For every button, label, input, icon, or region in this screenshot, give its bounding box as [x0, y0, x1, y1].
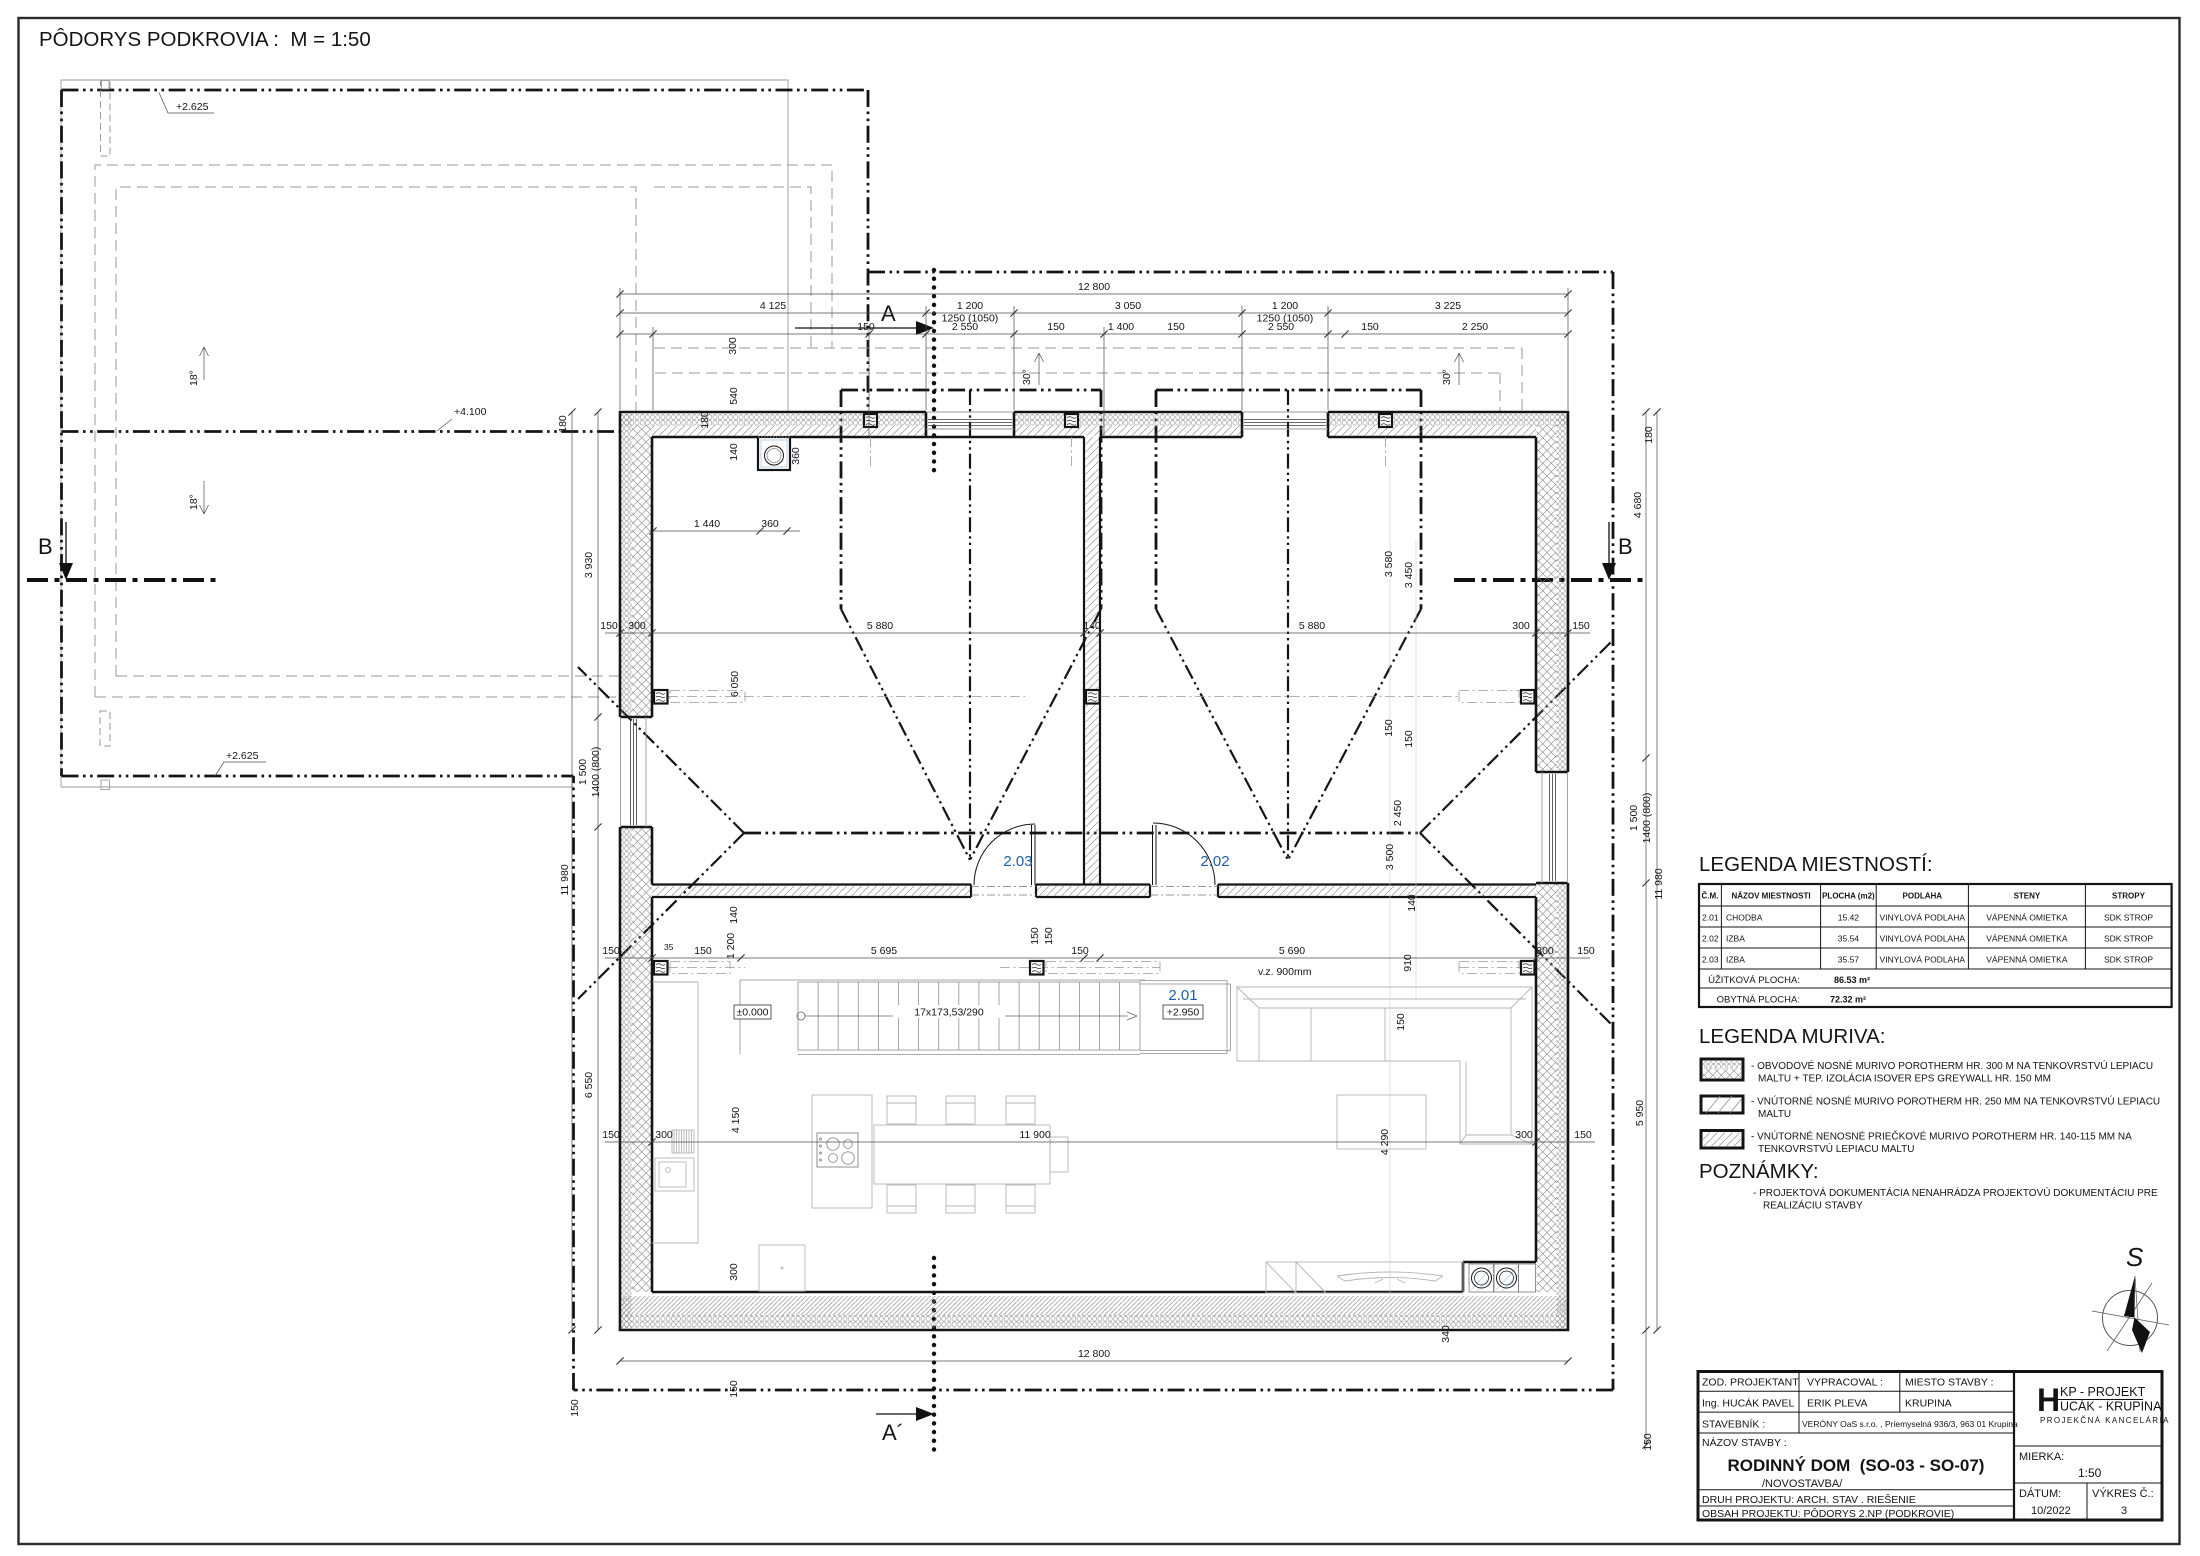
svg-text:2 450: 2 450 [1392, 800, 1404, 826]
svg-text:1 440: 1 440 [694, 518, 720, 530]
svg-text:SDK STROP: SDK STROP [2104, 934, 2153, 944]
svg-text:6 550: 6 550 [583, 1072, 595, 1098]
svg-text:4 680: 4 680 [1632, 492, 1644, 518]
svg-text:2.01: 2.01 [1702, 913, 1719, 923]
svg-text:86.53 m²: 86.53 m² [1834, 975, 1870, 985]
svg-text:180: 180 [1643, 426, 1655, 444]
svg-text:2.03: 2.03 [1003, 853, 1032, 870]
svg-text:REALIZÁCIU STAVBY: REALIZÁCIU STAVBY [1763, 1199, 1863, 1212]
svg-text:VINYLOVÁ PODLAHA: VINYLOVÁ PODLAHA [1880, 955, 1966, 965]
svg-text:11 900: 11 900 [1019, 1129, 1050, 1141]
svg-text:1 200: 1 200 [1272, 300, 1298, 312]
svg-text:4 150: 4 150 [730, 1107, 742, 1133]
svg-text:RODINNÝ DOM (SO-03 - SO-07): RODINNÝ DOM (SO-03 - SO-07) [1728, 1456, 1985, 1475]
svg-text:1 500: 1 500 [577, 759, 589, 785]
svg-text:ZOD. PROJEKTANT:: ZOD. PROJEKTANT: [1702, 1377, 1800, 1389]
svg-text:v.z. 900mm: v.z. 900mm [1258, 966, 1312, 978]
svg-text:B: B [38, 534, 53, 559]
svg-text:STAVEBNÍK :: STAVEBNÍK : [1702, 1418, 1765, 1431]
svg-text:3: 3 [2121, 1505, 2127, 1517]
svg-text:STROPY: STROPY [2112, 892, 2146, 901]
svg-text:ERIK PLEVA: ERIK PLEVA [1807, 1398, 1868, 1410]
svg-text:H: H [2037, 1382, 2060, 1418]
svg-text:10/2022: 10/2022 [2031, 1505, 2071, 1517]
svg-text:150: 150 [1395, 1013, 1407, 1031]
svg-text:150: 150 [1577, 945, 1595, 957]
svg-text:5 690: 5 690 [1279, 945, 1305, 957]
svg-text:IZBA: IZBA [1726, 934, 1745, 944]
svg-text:30°: 30° [1441, 369, 1453, 385]
svg-text:SDK STROP: SDK STROP [2104, 913, 2153, 923]
svg-text:6 050: 6 050 [729, 671, 741, 697]
svg-text:150: 150 [602, 1129, 620, 1141]
svg-text:1:50: 1:50 [2078, 1466, 2102, 1480]
svg-text:5 880: 5 880 [867, 620, 893, 632]
svg-text:S: S [2126, 1242, 2144, 1272]
svg-text:1400 (800): 1400 (800) [1641, 793, 1653, 844]
svg-text:300: 300 [1515, 1129, 1533, 1141]
svg-text:3 930: 3 930 [583, 552, 595, 578]
svg-text:- PROJEKTOVÁ DOKUMENTÁCIA NENA: - PROJEKTOVÁ DOKUMENTÁCIA NENAHRÁDZA PRO… [1753, 1186, 2158, 1199]
svg-text:+2.625: +2.625 [176, 101, 209, 113]
svg-text:140: 140 [728, 906, 740, 924]
svg-text:3 500: 3 500 [1384, 844, 1396, 870]
svg-text:300: 300 [655, 1129, 673, 1141]
svg-text:PROJEKČNÁ KANCELÁRIA: PROJEKČNÁ KANCELÁRIA [2040, 1416, 2170, 1425]
svg-text:1 400: 1 400 [1108, 321, 1134, 333]
svg-text:540: 540 [728, 387, 740, 405]
svg-text:150: 150 [569, 1399, 581, 1417]
svg-text:VÁPENNÁ OMIETKA: VÁPENNÁ OMIETKA [1986, 955, 2068, 965]
svg-text:300: 300 [727, 337, 739, 355]
svg-text:A: A [881, 301, 896, 326]
svg-text:150: 150 [1047, 321, 1065, 333]
svg-text:MIERKA:: MIERKA: [2019, 1451, 2064, 1463]
svg-text:2.03: 2.03 [1702, 955, 1719, 965]
svg-text:12 800: 12 800 [1078, 281, 1110, 293]
svg-text:360: 360 [790, 447, 802, 465]
svg-text:MIESTO STAVBY :: MIESTO STAVBY : [1905, 1377, 1994, 1389]
svg-text:150: 150 [1361, 321, 1379, 333]
svg-text:150: 150 [728, 1380, 740, 1398]
svg-text:VYPRACOVAL :: VYPRACOVAL : [1807, 1377, 1883, 1389]
svg-text:35.57: 35.57 [1838, 955, 1860, 965]
svg-text:/NOVOSTAVBA/: /NOVOSTAVBA/ [1762, 1478, 1843, 1490]
svg-text:IZBA: IZBA [1726, 955, 1745, 965]
svg-text:2 250: 2 250 [1462, 321, 1488, 333]
svg-text:140: 140 [1406, 894, 1418, 912]
svg-text:VÁPENNÁ OMIETKA: VÁPENNÁ OMIETKA [1986, 934, 2068, 944]
svg-text:2 550: 2 550 [1268, 321, 1294, 333]
svg-text:3 050: 3 050 [1115, 300, 1141, 312]
svg-text:DÁTUM:: DÁTUM: [2019, 1487, 2061, 1500]
svg-text:150: 150 [1043, 927, 1055, 945]
svg-text:5 695: 5 695 [871, 945, 897, 957]
svg-text:NÁZOV MIESTNOSTI: NÁZOV MIESTNOSTI [1731, 892, 1810, 901]
svg-text:72.32 m²: 72.32 m² [1830, 995, 1866, 1005]
svg-text:SDK STROP: SDK STROP [2104, 955, 2153, 965]
svg-text:140: 140 [728, 443, 740, 461]
svg-text:2.01: 2.01 [1168, 987, 1197, 1004]
svg-text:150: 150 [602, 945, 620, 957]
svg-text:1 200: 1 200 [725, 933, 737, 959]
svg-text:150: 150 [857, 321, 875, 333]
svg-text:VÁPENNÁ OMIETKA: VÁPENNÁ OMIETKA [1986, 913, 2068, 923]
svg-text:OBYTNÁ PLOCHA:: OBYTNÁ PLOCHA: [1717, 995, 1800, 1006]
svg-text:3 580: 3 580 [1383, 551, 1395, 577]
svg-text:VINYLOVÁ PODLAHA: VINYLOVÁ PODLAHA [1880, 913, 1966, 923]
svg-text:2.02: 2.02 [1200, 853, 1229, 870]
svg-text:LEGENDA MIESTNOSTÍ:: LEGENDA MIESTNOSTÍ: [1699, 853, 1933, 876]
svg-text:150: 150 [1572, 620, 1590, 632]
svg-text:A´: A´ [882, 1420, 904, 1445]
svg-text:300: 300 [628, 620, 646, 632]
svg-text:+4.100: +4.100 [454, 406, 487, 418]
svg-text:NÁZOV STAVBY :: NÁZOV STAVBY : [1702, 1436, 1787, 1449]
svg-text:30°: 30° [1021, 369, 1033, 385]
svg-text:B: B [1618, 534, 1633, 559]
svg-text:180: 180 [557, 415, 569, 433]
svg-text:150: 150 [1642, 1433, 1654, 1451]
svg-text:ÚŽITKOVÁ PLOCHA:: ÚŽITKOVÁ PLOCHA: [1708, 975, 1800, 986]
svg-text:17x173,53/290: 17x173,53/290 [914, 1007, 984, 1019]
svg-text:MALTU + TEP. IZOLÁCIA ISOVER E: MALTU + TEP. IZOLÁCIA ISOVER EPS GREYWAL… [1758, 1072, 2051, 1085]
svg-text:5 880: 5 880 [1299, 620, 1325, 632]
svg-text:180: 180 [699, 411, 711, 429]
svg-text:1400 (800): 1400 (800) [590, 747, 602, 798]
svg-text:3 225: 3 225 [1435, 300, 1461, 312]
svg-text:3 450: 3 450 [1403, 562, 1415, 588]
svg-text:300: 300 [1512, 620, 1530, 632]
svg-text:11 980: 11 980 [1653, 868, 1665, 899]
svg-text:150: 150 [1029, 927, 1041, 945]
svg-text:150: 150 [600, 620, 618, 632]
svg-text:VERÓNY OaS s.r.o. , Priemyseln: VERÓNY OaS s.r.o. , Priemyselná 936/3, 9… [1802, 1419, 2018, 1429]
svg-text:150: 150 [1167, 321, 1185, 333]
svg-text:OBSAH PROJEKTU: PÔDORYS 2.NP (: OBSAH PROJEKTU: PÔDORYS 2.NP (PODKROVIE) [1702, 1507, 1954, 1520]
svg-text:150: 150 [1403, 730, 1415, 748]
svg-text:TENKOVRSTVÚ LEPIACU MALTU: TENKOVRSTVÚ LEPIACU MALTU [1758, 1142, 1915, 1155]
svg-text:35.54: 35.54 [1838, 934, 1860, 944]
svg-text:STENY: STENY [2014, 892, 2041, 901]
svg-text:910: 910 [1402, 954, 1414, 972]
svg-text:18°: 18° [188, 494, 200, 510]
svg-text:140: 140 [1083, 620, 1101, 632]
svg-text:4 290: 4 290 [1379, 1129, 1391, 1155]
svg-text:±0.000: ±0.000 [736, 1007, 768, 1019]
svg-text:1 500: 1 500 [1628, 805, 1640, 831]
svg-text:150: 150 [1574, 1129, 1592, 1141]
svg-text:- VNÚTORNÉ NOSNÉ MURIVO POROTH: - VNÚTORNÉ NOSNÉ MURIVO POROTHERM HR. 25… [1751, 1095, 2160, 1108]
svg-text:4 125: 4 125 [760, 300, 786, 312]
svg-text:1 200: 1 200 [957, 300, 983, 312]
svg-text:- VNÚTORNÉ NENOSNÉ PRIEČKOVÉ M: - VNÚTORNÉ NENOSNÉ PRIEČKOVÉ MURIVO PORO… [1751, 1130, 2132, 1143]
svg-text:150: 150 [1071, 945, 1089, 957]
svg-text:POZNÁMKY:: POZNÁMKY: [1699, 1160, 1819, 1183]
svg-text:5 950: 5 950 [1634, 1100, 1646, 1126]
svg-text:LEGENDA MURIVA:: LEGENDA MURIVA: [1699, 1025, 1885, 1048]
svg-text:PLOCHA (m2): PLOCHA (m2) [1822, 892, 1875, 901]
svg-text:2 550: 2 550 [952, 321, 978, 333]
svg-text:15.42: 15.42 [1838, 913, 1860, 923]
svg-text:KP - PROJEKT: KP - PROJEKT [2060, 1385, 2146, 1399]
svg-text:+2.625: +2.625 [226, 750, 259, 762]
svg-text:35: 35 [664, 942, 674, 952]
svg-text:PODLAHA: PODLAHA [1903, 892, 1943, 901]
svg-text:- OBVODOVÉ NOSNÉ MURIVO POROTH: - OBVODOVÉ NOSNÉ MURIVO POROTHERM HR. 30… [1751, 1059, 2153, 1072]
svg-text:Ing. HUCÁK PAVEL: Ing. HUCÁK PAVEL [1702, 1397, 1795, 1410]
svg-text:VÝKRES Č.:: VÝKRES Č.: [2092, 1487, 2154, 1500]
svg-text:CHODBA: CHODBA [1726, 913, 1763, 923]
svg-text:MALTU: MALTU [1758, 1109, 1791, 1120]
svg-text:340: 340 [1440, 1325, 1452, 1343]
svg-text:11 980: 11 980 [559, 864, 571, 895]
svg-text:150: 150 [1383, 719, 1395, 737]
svg-text:VINYLOVÁ PODLAHA: VINYLOVÁ PODLAHA [1880, 934, 1966, 944]
svg-text:UCÁK - KRUPINA: UCÁK - KRUPINA [2060, 1399, 2162, 1414]
svg-text:PÔDORYS PODKROVIA : M = 1:50: PÔDORYS PODKROVIA : M = 1:50 [39, 28, 371, 51]
svg-text:12 800: 12 800 [1078, 1348, 1110, 1360]
svg-text:DRUH PROJEKTU: ARCH. STAV . RI: DRUH PROJEKTU: ARCH. STAV . RIEŠENIE [1702, 1493, 1916, 1506]
svg-text:300: 300 [728, 1263, 740, 1281]
svg-text:360: 360 [761, 518, 779, 530]
svg-text:300: 300 [1536, 945, 1554, 957]
svg-text:+2.950: +2.950 [1167, 1007, 1200, 1019]
svg-text:150: 150 [694, 945, 712, 957]
svg-text:Č.M.: Č.M. [1702, 892, 1719, 901]
svg-text:18°: 18° [188, 370, 200, 386]
svg-text:KRUPINA: KRUPINA [1905, 1398, 1952, 1410]
svg-text:2.02: 2.02 [1702, 934, 1719, 944]
